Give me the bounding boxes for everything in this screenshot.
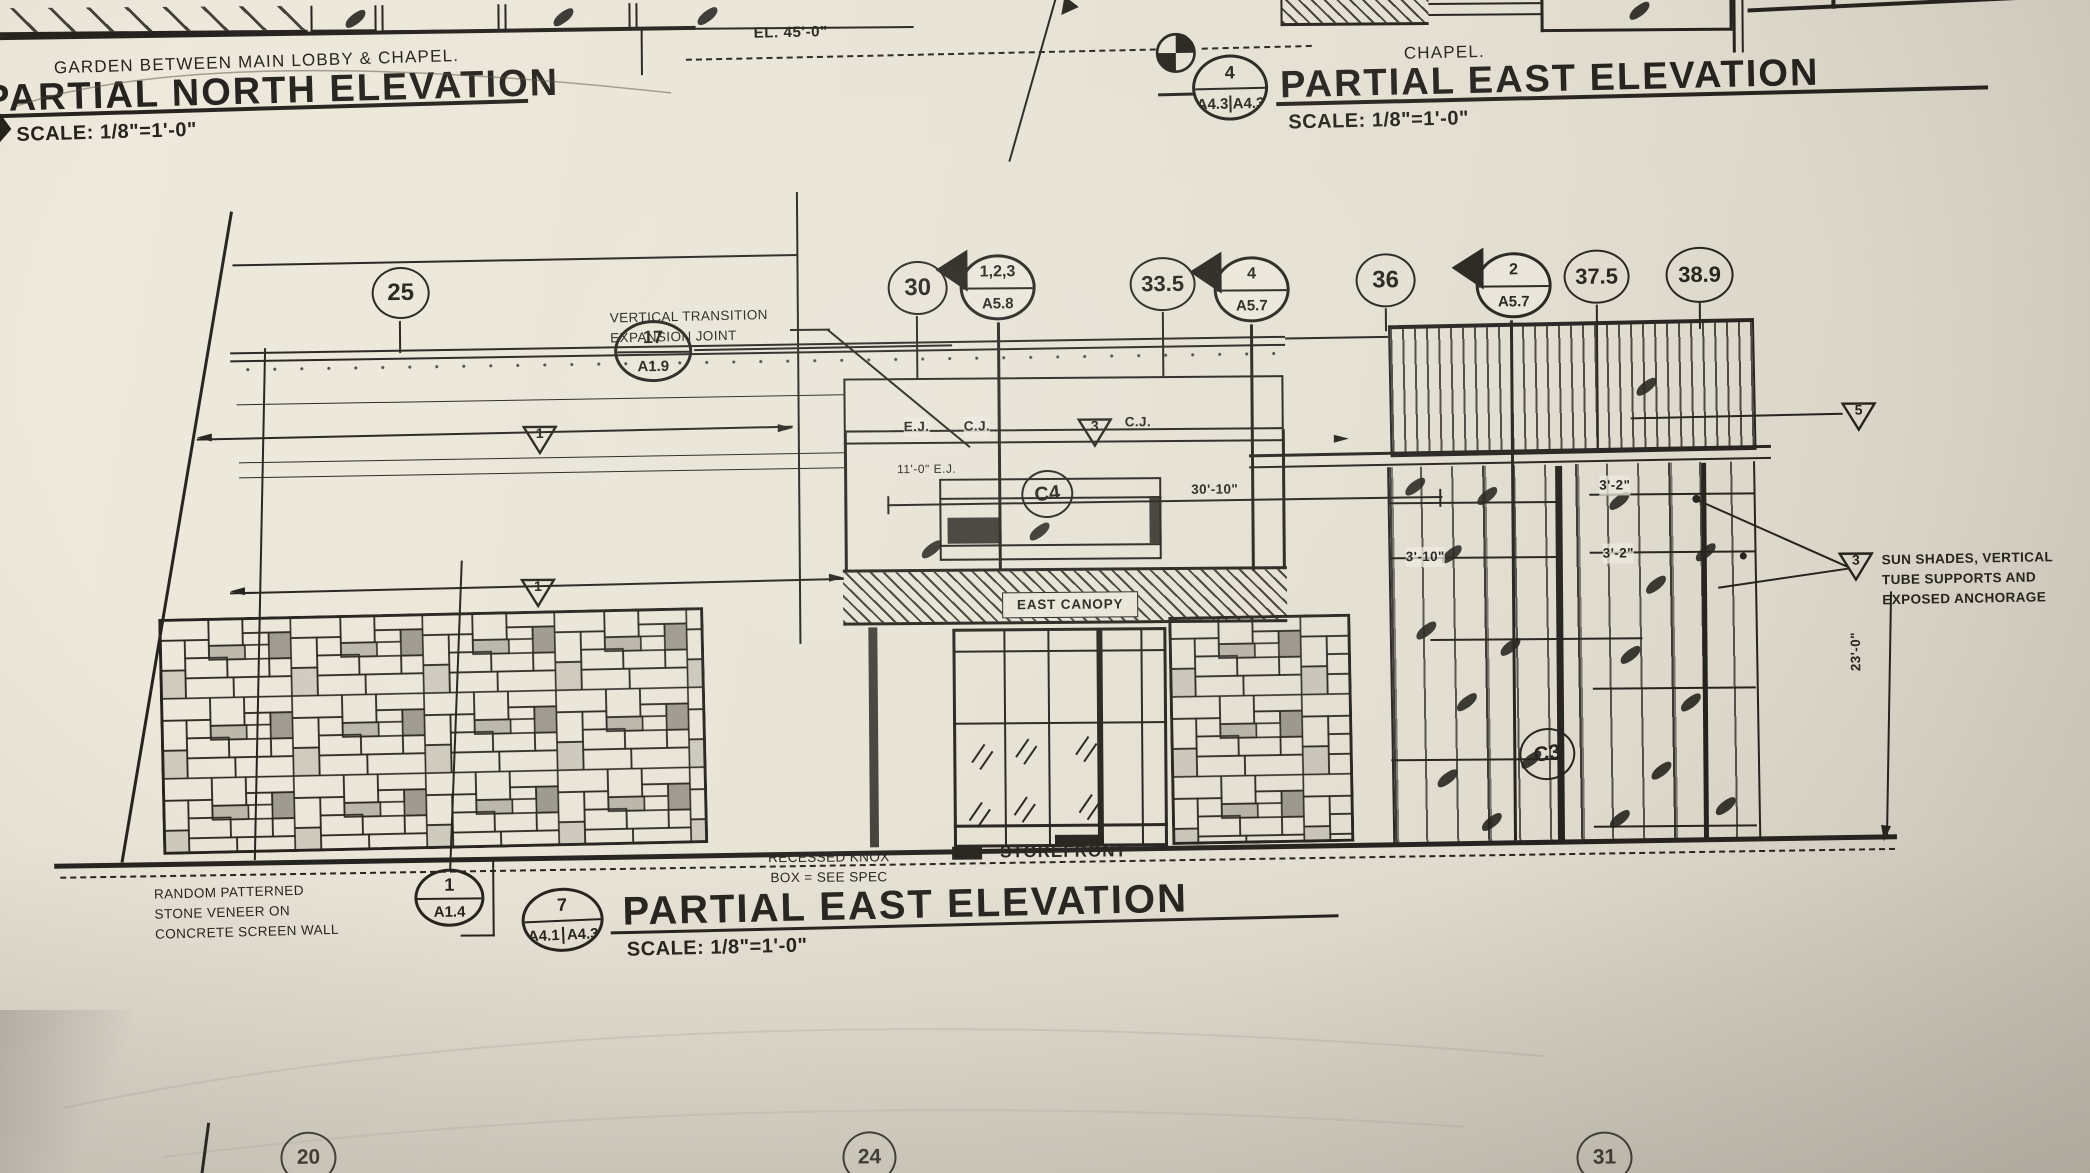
grid-bubble-31: 31: [1576, 1131, 1632, 1173]
paper-crease: [11, 31, 682, 116]
keynote-triangle-1: 1: [522, 425, 558, 455]
section-number: 2: [1478, 255, 1548, 288]
wall-edge-line: [796, 192, 801, 644]
grid-line: [1385, 308, 1387, 331]
drawing-line: [1285, 336, 1388, 340]
stone-wall-right: [1168, 614, 1354, 845]
grid-bubble-36: 36: [1355, 253, 1415, 307]
dim-arrow-icon: [230, 587, 245, 595]
dim-arrow-icon: [197, 434, 212, 442]
grid-bubble-33.5: 33.5: [1129, 257, 1195, 312]
dim-tick: [887, 496, 889, 514]
blueprint-photo: EL. 45'-0" GARDEN BETWEEN MAIN LOBBY & C…: [0, 0, 2090, 1173]
stone-wall-left: [158, 607, 708, 855]
detail-number: 17: [617, 323, 689, 354]
bubble-midline-ext: [1158, 93, 1194, 96]
east-canopy-label: EAST CANOPY: [1017, 594, 1123, 615]
dim-3-2-a: 3'-2": [1599, 475, 1630, 495]
dark-panel: [1149, 496, 1161, 543]
site-line: [232, 254, 797, 266]
dim-arrow-icon: [1334, 435, 1349, 443]
section-sheet: A5.8: [963, 289, 1033, 317]
keynote-triangle-3: 3: [1077, 417, 1113, 447]
benchmark-level-icon: [1154, 31, 1198, 75]
section-marker-2-A5.7: 2 A5.7: [1475, 252, 1552, 319]
drawing-line: [237, 394, 844, 405]
grid-line: [916, 316, 918, 378]
tower-wall-line: [844, 433, 848, 573]
grid-bubble-25: 25: [371, 267, 429, 319]
section-marker-123-A5.8: 1,2,3 A5.8: [959, 254, 1036, 321]
drawing-line: [1741, 0, 1743, 53]
drawing-line: [1732, 0, 1735, 53]
dim-line-vertical: [1886, 591, 1892, 837]
leader-arrow-icon: [1054, 0, 1079, 21]
drawing-line: [1747, 0, 2085, 12]
detail-bubble-4-A4.3: 4 A4.3 A4.3: [1191, 54, 1269, 122]
sheet-ref-right: A4.3: [1231, 94, 1265, 112]
section-number: 1,2,3: [962, 257, 1032, 290]
top-dash-line: [686, 49, 1156, 61]
section-sheet: A5.7: [1217, 291, 1287, 319]
leader-dot: [1740, 552, 1747, 559]
keynote-triangle-5: 5: [1841, 401, 1877, 431]
leader-line: [1008, 0, 1057, 162]
section-marker-4-A5.7: 4 A5.7: [1213, 256, 1290, 323]
drawing-line: [1428, 2, 1540, 5]
paper-crease: [63, 936, 1565, 1168]
section-flag-icon: [935, 250, 967, 292]
ej-dim-label: 11'-0" E.J.: [897, 462, 956, 476]
section-flag-icon: [1189, 252, 1221, 294]
top-dash-line: [1202, 45, 1312, 50]
dim-line: [197, 426, 793, 441]
chapel-plank-band: [1388, 318, 1757, 457]
canopy-column: [868, 627, 879, 847]
detail-bubble-17-A1.9: 17 A1.9: [614, 320, 692, 383]
drawing-line: [1429, 13, 1541, 15]
knox-box-note: RECESSED KNOX BOX = SEE SPEC: [768, 847, 890, 888]
dark-panel: [947, 517, 1001, 543]
detail-bubble-1-A1.4: 1 A1.4: [414, 868, 484, 927]
detail-sheet: A4.3 A4.3: [1195, 89, 1266, 118]
stone-veneer-note: RANDOM PATTERNED STONE VENEER ON CONCRET…: [154, 880, 339, 945]
sunshade-note: SUN SHADES, VERTICAL TUBE SUPPORTS AND E…: [1881, 547, 2054, 610]
section-number: 4: [1216, 259, 1286, 292]
ej-label: E.J.: [904, 417, 930, 437]
cj-label: C.J.: [1125, 412, 1152, 432]
dim-arrow-icon: [778, 424, 793, 432]
leader-line: [790, 329, 830, 331]
leader-line: [461, 934, 495, 936]
keynote-triangle-3: 3: [1838, 551, 1874, 581]
detail-sheet: A1.9: [617, 353, 689, 379]
detail-number: 1: [417, 871, 481, 900]
grid-bubble-37.5: 37.5: [1563, 249, 1629, 304]
east-elevation-top-scale: SCALE: 1/8"=1'-0": [1288, 107, 1469, 134]
detail-sheet: A1.4: [417, 900, 481, 924]
top-elevation-label: EL. 45'-0": [753, 23, 828, 42]
top-hatch-band: [1280, 0, 1428, 26]
dim-3-2-b: 3'-2": [1603, 543, 1634, 563]
sheet-ref-left: A4.3: [1195, 95, 1231, 113]
detail-number: 7: [523, 889, 600, 924]
sheet-ref-right: A4.3: [564, 925, 602, 944]
cj-label: C.J.: [964, 416, 991, 436]
section-sheet: A5.7: [1479, 287, 1549, 315]
east-canopy-label-plate: EAST CANOPY: [1002, 591, 1138, 618]
drawing-line: [1831, 0, 1835, 9]
dim-23-0: 23'-0": [1846, 632, 1866, 671]
top-panel-box: [310, 5, 376, 32]
dim-3-10: 3'-10": [1406, 547, 1445, 567]
north-elevation-scale: SCALE: 1/8"=1'-0": [16, 119, 197, 147]
drawing-line: [844, 439, 1284, 444]
sheet-ref-left: A4.1: [525, 927, 565, 946]
dim-30-10: 30'-10": [1191, 479, 1238, 499]
dim-arrow-icon: [829, 574, 844, 582]
grid-line: [1162, 312, 1165, 377]
drawing-area: EL. 45'-0" GARDEN BETWEEN MAIN LOBBY & C…: [0, 0, 2090, 1173]
drawing-line: [239, 467, 844, 478]
grid-bubble-38.9: 38.9: [1665, 247, 1733, 304]
detail-number: 4: [1194, 57, 1265, 91]
grid-line: [399, 321, 401, 353]
storefront-label: STOREFRONT: [1000, 841, 1127, 862]
keynote-triangle-1: 1: [520, 578, 556, 608]
section-flag-icon: [1451, 248, 1483, 290]
